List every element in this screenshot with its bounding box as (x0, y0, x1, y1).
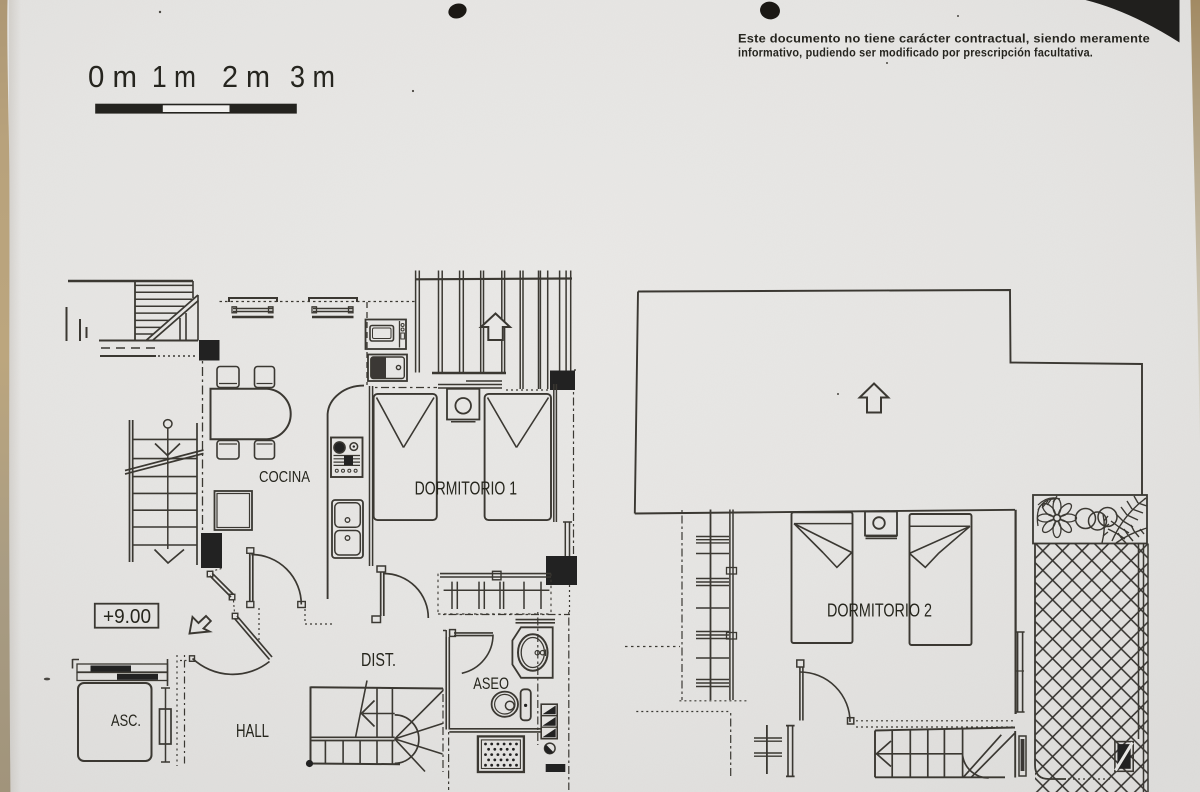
svg-text:1 m: 1 m (152, 59, 196, 94)
svg-text:0 m: 0 m (88, 59, 137, 94)
svg-text:informativo, pudiendo ser modi: informativo, pudiendo ser modificado por… (738, 47, 1093, 60)
svg-text:ASC.: ASC. (111, 711, 141, 730)
svg-text:HALL: HALL (236, 721, 269, 741)
svg-text:DIST.: DIST. (361, 650, 396, 670)
svg-text:Este documento no tiene caráct: Este documento no tiene carácter contrac… (738, 33, 1150, 46)
svg-text:3 m: 3 m (290, 59, 335, 94)
svg-text:DORMITORIO 1: DORMITORIO 1 (415, 477, 517, 498)
svg-text:+9.00: +9.00 (103, 606, 151, 628)
svg-text:2 m: 2 m (222, 59, 270, 94)
svg-text:DORMITORIO 2: DORMITORIO 2 (827, 600, 932, 621)
svg-text:COCINA: COCINA (259, 469, 310, 486)
svg-text:ASEO: ASEO (473, 674, 509, 693)
